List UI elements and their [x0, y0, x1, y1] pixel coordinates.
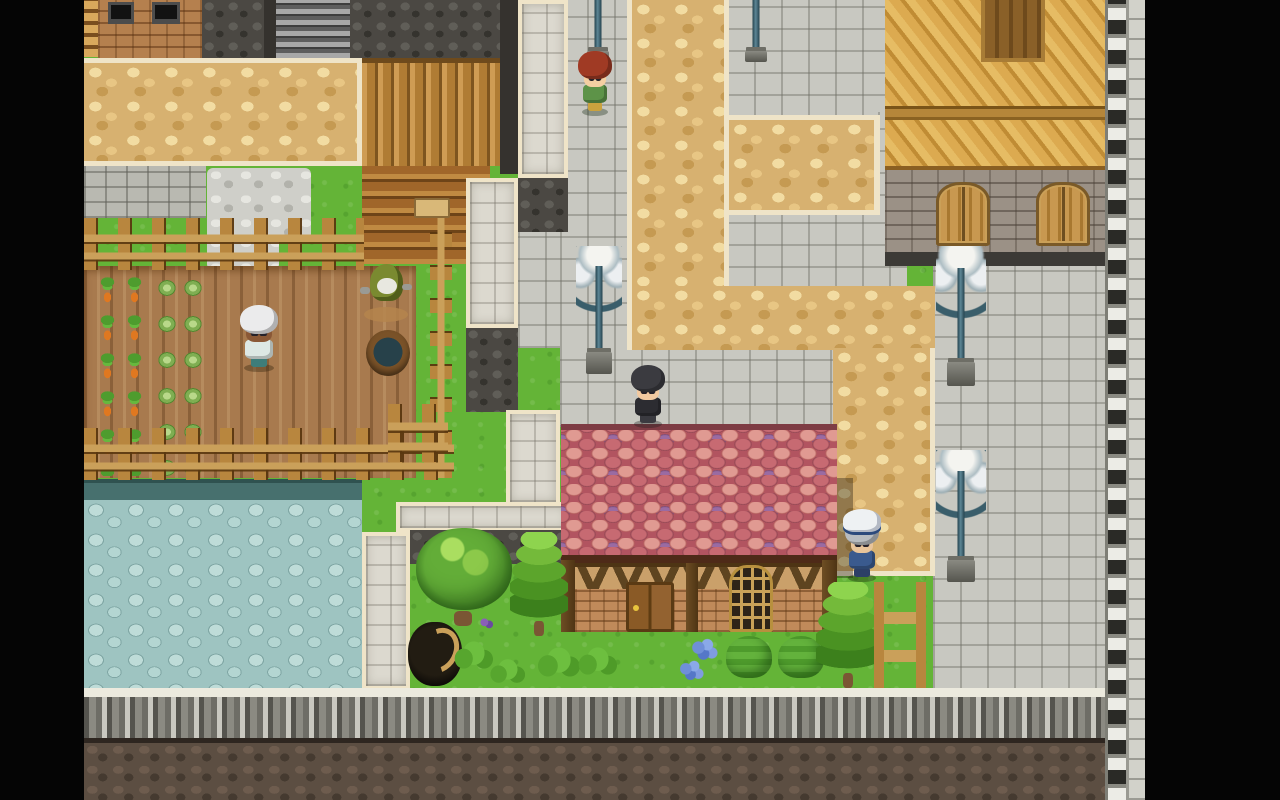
letterbox-left — [0, 0, 84, 800]
corrugated-roof — [276, 0, 350, 58]
east-edge-wall-column — [1105, 0, 1129, 800]
cobble-path-top-band — [84, 58, 362, 166]
gray-brick-pavement — [84, 166, 206, 218]
s-mound — [364, 307, 408, 322]
letterbox-right — [1145, 0, 1280, 800]
shuttered-window — [936, 182, 990, 246]
conifer-tree — [816, 582, 880, 688]
s-face — [377, 278, 396, 294]
dark-strip-a — [264, 0, 276, 58]
pebble-pond — [84, 500, 362, 690]
c-body — [245, 339, 273, 359]
shuttered-window — [1036, 182, 1090, 246]
c-hair — [578, 51, 611, 80]
grass-tuft — [576, 646, 618, 676]
cobble-path-vertical — [627, 0, 729, 290]
rampart-segment-north — [518, 0, 568, 178]
scarecrow — [362, 264, 410, 322]
south-cobble-base — [84, 738, 1145, 800]
npc-redhead-villager[interactable] — [577, 52, 613, 114]
dark-strip-b — [500, 0, 518, 174]
house-window — [729, 565, 773, 632]
east-building-dormer — [981, 0, 1045, 62]
s-armL — [360, 287, 370, 293]
house-door[interactable] — [626, 582, 674, 632]
round-tree — [416, 528, 512, 630]
trimmed-bush — [726, 636, 772, 678]
rampart-segment-mid — [466, 178, 518, 328]
c-hat — [843, 509, 881, 531]
c-body — [849, 550, 874, 569]
wood-ladder-strip — [84, 0, 98, 57]
dark-pocket-a — [518, 178, 568, 232]
npc-sailor-captain[interactable] — [843, 518, 881, 580]
rampart-segment-low — [506, 410, 560, 506]
street-lamp — [576, 246, 622, 374]
purple-flowers — [478, 616, 494, 630]
east-edge-light-column — [1129, 0, 1145, 800]
dark-wall-b — [350, 0, 500, 58]
player-blackhair[interactable] — [629, 366, 667, 426]
farm-fence-north — [84, 218, 364, 270]
cobble-plaza — [627, 286, 935, 350]
south-battlement-wall — [84, 688, 1145, 742]
garden-fence-small — [388, 404, 448, 462]
house-timber-band — [561, 563, 837, 589]
plaza-mid-pocket — [727, 212, 907, 290]
street-lamp — [936, 450, 986, 582]
c-hair — [240, 305, 279, 334]
grass-tuft — [488, 658, 526, 684]
s-armR — [402, 284, 412, 290]
blue-flowers — [678, 660, 704, 682]
east-building-eave — [885, 106, 1107, 120]
blue-flowers — [690, 638, 718, 662]
street-lamp-pole — [736, 0, 776, 62]
dark-window — [108, 2, 134, 24]
game-viewport — [0, 0, 1280, 800]
dark-window — [152, 2, 180, 24]
log-wall-vertical — [362, 58, 500, 166]
dark-pocket-b — [466, 328, 518, 412]
cobble-path-branch — [729, 115, 880, 215]
c-hair — [631, 365, 666, 393]
street-lamp — [936, 246, 986, 386]
grass-tuft — [535, 646, 581, 678]
rampart-segment-south — [362, 532, 410, 690]
c-body — [635, 397, 660, 416]
water-tub — [366, 330, 410, 376]
wall-sign — [414, 198, 450, 218]
npc-whitehair-farmer[interactable] — [238, 306, 280, 370]
house-roof-shingles — [561, 430, 837, 558]
c-body — [583, 84, 607, 103]
dark-wall-a — [202, 0, 264, 58]
conifer-tree — [510, 532, 568, 636]
garden-fence-corner — [874, 582, 926, 688]
house-post-mid — [686, 563, 698, 632]
east-building-footer — [885, 252, 1107, 266]
